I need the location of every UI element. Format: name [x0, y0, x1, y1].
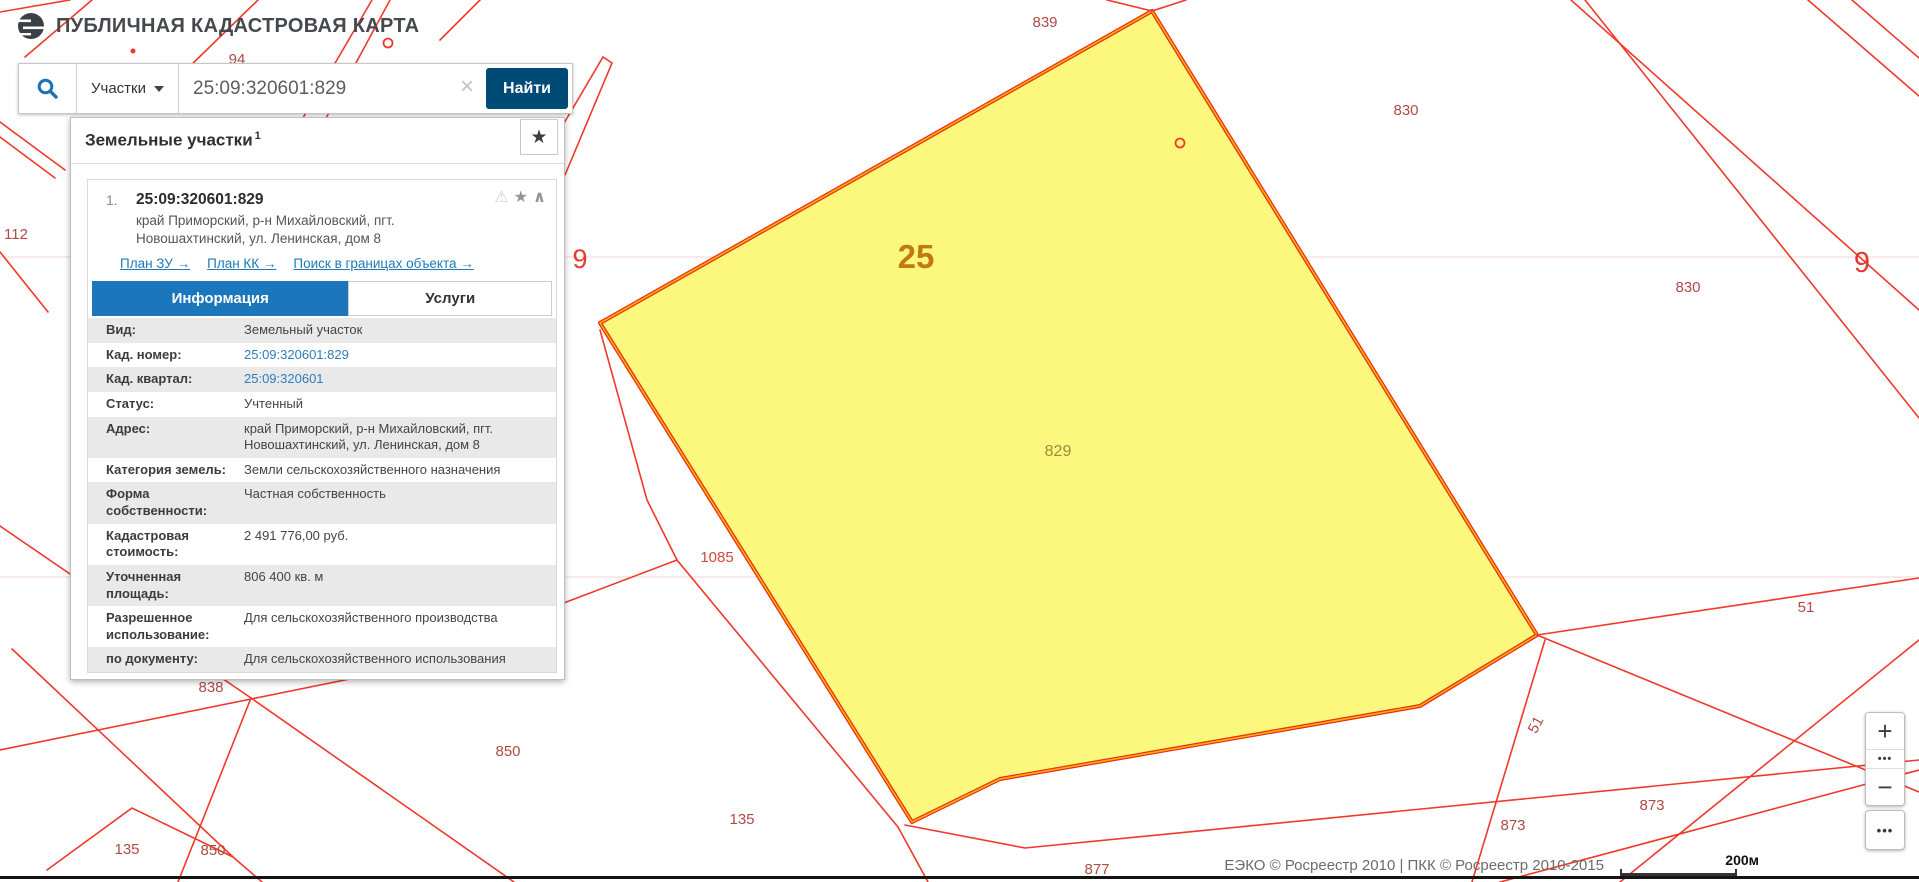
- map-parcel-label: 25: [898, 238, 935, 275]
- info-value: Земельный участок: [242, 318, 556, 343]
- info-value: Учтенный: [242, 392, 556, 417]
- info-value-link[interactable]: 25:09:320601:829: [242, 343, 556, 368]
- app-title: ПУБЛИЧНАЯ КАДАСТРОВАЯ КАРТА: [56, 15, 419, 38]
- warning-icon[interactable]: ⚠: [494, 190, 508, 206]
- info-value: край Приморский, р-н Михайловский, пгт. …: [242, 417, 556, 458]
- map-parcel-label: 839: [1032, 14, 1057, 31]
- info-label: Кадастровая стоимость:: [88, 524, 242, 565]
- result-tabs: ИнформацияУслуги: [92, 281, 552, 316]
- results-panel-header: Земельные участки1 ★: [71, 118, 564, 164]
- info-row: Статус:Учтенный: [88, 392, 556, 417]
- info-value: Для сельскохозяйственного производства: [242, 606, 556, 647]
- star-icon: ★: [530, 128, 547, 147]
- map-parcel-label: 829: [1045, 443, 1072, 460]
- result-index: 1.: [106, 192, 118, 208]
- search-icon[interactable]: [19, 77, 76, 100]
- map-parcel-label: 135: [729, 811, 754, 828]
- zoom-out-button[interactable]: −: [1866, 769, 1904, 805]
- result-address: край Приморский, р-н Михайловский, пгт. …: [136, 212, 466, 247]
- find-button[interactable]: Найти: [486, 68, 568, 109]
- attribution-text: ЕЭКО © Росреестр 2010 | ПКК © Росреестр …: [1224, 857, 1604, 876]
- info-value: Для сельскохозяйственного использования: [242, 647, 556, 672]
- info-row: Кад. номер:25:09:320601:829: [88, 343, 556, 368]
- info-label: Кад. номер:: [88, 343, 242, 368]
- chevron-down-icon: [154, 86, 164, 92]
- result-links-row: План ЗУ →План КК →Поиск в границах объек…: [120, 256, 556, 271]
- scale-control: 200м: [1620, 852, 1737, 876]
- collapse-icon[interactable]: ∧: [533, 190, 546, 206]
- tab-информация[interactable]: Информация: [92, 281, 348, 316]
- info-row: по документу:Для сельскохозяйственного и…: [88, 647, 556, 672]
- map-parcel-label: 873: [1639, 797, 1664, 814]
- map-parcel-label: 51: [1798, 599, 1815, 616]
- map-parcel-label: 9: [572, 244, 587, 274]
- info-value-link[interactable]: 25:09:320601: [242, 367, 556, 392]
- info-label: Адрес:: [88, 417, 242, 458]
- tools-menu-button[interactable]: •••: [1865, 810, 1905, 850]
- info-row: Категория земель:Земли сельскохозяйствен…: [88, 458, 556, 483]
- search-input[interactable]: [179, 78, 454, 100]
- map-attribution: ЕЭКО © Росреестр 2010 | ПКК © Росреестр …: [1224, 852, 1737, 876]
- map-parcel-label: 850: [495, 743, 520, 760]
- result-link-1[interactable]: План КК →: [207, 256, 276, 271]
- info-label: Кад. квартал:: [88, 367, 242, 392]
- zoom-controls: + ••• −: [1865, 712, 1905, 806]
- info-value: 806 400 кв. м: [242, 565, 556, 606]
- result-link-2[interactable]: Поиск в границах объекта →: [293, 256, 473, 271]
- info-row: Кадастровая стоимость:2 491 776,00 руб.: [88, 524, 556, 565]
- clear-search-icon[interactable]: ×: [454, 75, 486, 102]
- map-parcel-label: 873: [1500, 817, 1525, 834]
- app-header: ПУБЛИЧНАЯ КАДАСТРОВАЯ КАРТА: [16, 11, 419, 41]
- info-label: по документу:: [88, 647, 242, 672]
- tab-услуги[interactable]: Услуги: [348, 281, 552, 316]
- scale-label: 200м: [1725, 852, 1759, 868]
- info-row: Вид:Земельный участок: [88, 318, 556, 343]
- info-row: Разрешенное использование:Для сельскохоз…: [88, 606, 556, 647]
- map-parcel-label: 1085: [700, 549, 733, 566]
- map-parcel-label: 112: [4, 226, 28, 243]
- map-parcel-label: 9: [1854, 247, 1870, 279]
- results-count: 1: [255, 130, 261, 142]
- info-row: Форма собственности:Частная собственност…: [88, 482, 556, 523]
- results-panel: Земельные участки1 ★ 1. 25:09:320601:829…: [70, 117, 565, 680]
- info-label: Категория земель:: [88, 458, 242, 483]
- zoom-in-button[interactable]: +: [1866, 713, 1904, 750]
- result-card: 1. 25:09:320601:829 край Приморский, р-н…: [87, 179, 557, 673]
- map-bottom-border: [0, 876, 1919, 879]
- app-root: 9483983083092598291121085515183885013585…: [0, 0, 1919, 882]
- map-parcel-label: 850: [200, 842, 225, 859]
- info-label: Форма собственности:: [88, 482, 242, 523]
- basemap-menu-button[interactable]: •••: [1866, 750, 1904, 769]
- map-parcel-label: 838: [198, 679, 223, 696]
- info-row: Кад. квартал:25:09:320601: [88, 367, 556, 392]
- search-category-dropdown[interactable]: Участки: [76, 64, 179, 113]
- info-label: Уточненная площадь:: [88, 565, 242, 606]
- search-category-label: Участки: [91, 80, 146, 97]
- info-table: Вид:Земельный участокКад. номер:25:09:32…: [88, 318, 556, 672]
- info-row: Адрес:край Приморский, р-н Михайловский,…: [88, 417, 556, 458]
- info-value: Земли сельскохозяйственного назначения: [242, 458, 556, 483]
- info-value: Частная собственность: [242, 482, 556, 523]
- search-bar: Участки × Найти: [18, 63, 573, 114]
- pkk-logo-icon: [16, 11, 46, 41]
- info-label: Вид:: [88, 318, 242, 343]
- info-label: Разрешенное использование:: [88, 606, 242, 647]
- scale-bar: [1620, 869, 1737, 876]
- info-label: Статус:: [88, 392, 242, 417]
- favorite-icon[interactable]: ★: [514, 190, 528, 206]
- results-title: Земельные участки1: [85, 130, 261, 151]
- result-cadastral-number: 25:09:320601:829: [136, 191, 544, 209]
- info-row: Уточненная площадь:806 400 кв. м: [88, 565, 556, 606]
- info-value: 2 491 776,00 руб.: [242, 524, 556, 565]
- map-parcel-label: 830: [1393, 102, 1418, 119]
- map-parcel-label: 830: [1675, 279, 1700, 296]
- favorites-button[interactable]: ★: [520, 119, 558, 155]
- map-parcel-label: 135: [114, 841, 139, 858]
- result-link-0[interactable]: План ЗУ →: [120, 256, 190, 271]
